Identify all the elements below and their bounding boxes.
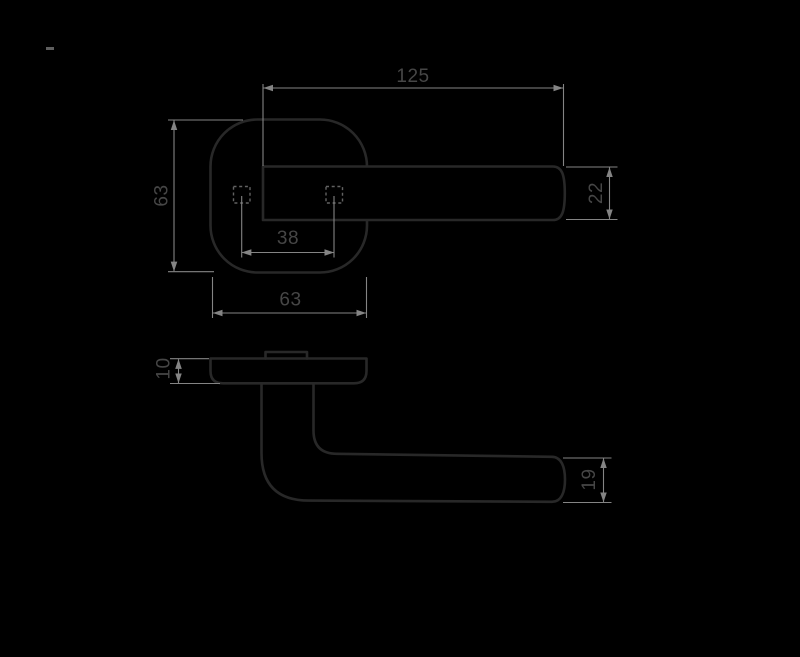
rosette-profile-outline — [211, 359, 367, 384]
lever-bar-outline — [263, 167, 565, 221]
dim-lever-length: 125 — [263, 66, 564, 166]
dim-grip-diameter: 19 — [563, 458, 612, 503]
dim-rosette-height-label: 63 — [152, 184, 173, 206]
dim-lever-width-label: 22 — [586, 182, 607, 204]
drawing-stage: 125 63 38 63 — [0, 0, 800, 657]
dim-rosette-width-label: 63 — [279, 290, 301, 311]
dim-hole-spacing-label: 38 — [277, 228, 299, 249]
handle-profile-outline — [262, 383, 566, 502]
technical-drawing-canvas: 125 63 38 63 — [0, 0, 800, 657]
corner-tick-mark — [46, 47, 54, 50]
dim-lever-length-label: 125 — [396, 66, 429, 87]
dim-rosette-thickness-label: 10 — [154, 357, 175, 379]
dim-grip-diameter-label: 19 — [579, 468, 600, 490]
dim-rosette-width: 63 — [213, 277, 367, 318]
top-view: 125 63 38 63 — [152, 66, 618, 318]
dim-rosette-height: 63 — [152, 120, 244, 272]
dim-lever-width: 22 — [566, 167, 618, 220]
side-view: 10 19 — [154, 352, 612, 503]
